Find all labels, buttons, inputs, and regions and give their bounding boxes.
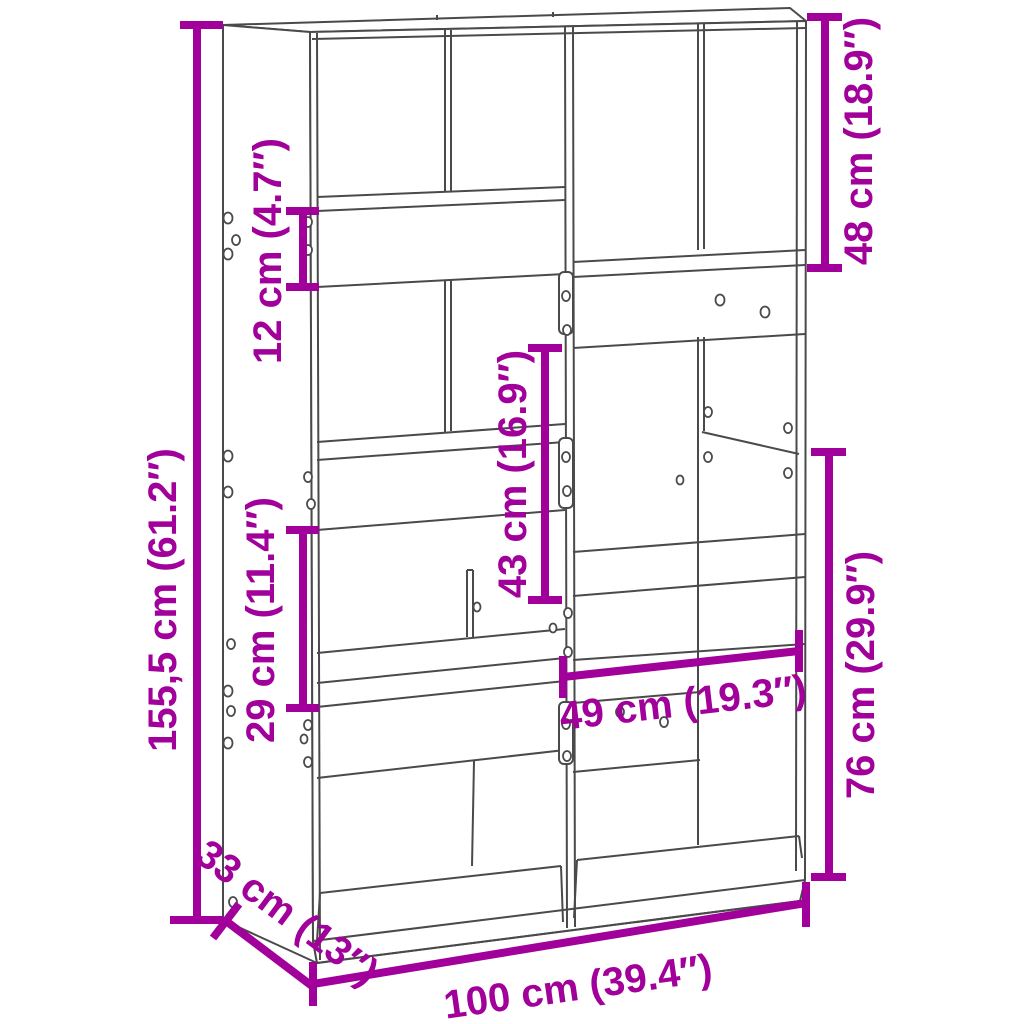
- dim-shelf-band-height-label: 12 cm (4.7″): [246, 138, 290, 364]
- right-inner-edge: [796, 22, 797, 871]
- dim-top-right-compartment-label: 48 cm (18.9″): [837, 17, 881, 265]
- bookcase-dimension-diagram: 155,5 cm (61.2″) 12 cm (4.7″) 29 cm (11.…: [0, 0, 1024, 1024]
- dim-center-compartment-label: 43 cm (16.9″): [491, 350, 535, 598]
- dimension-diagram-page: 155,5 cm (61.2″) 12 cm (4.7″) 29 cm (11.…: [0, 0, 1024, 1024]
- dim-left-compartment-label: 29 cm (11.4″): [239, 497, 283, 743]
- dim-right-lower-section-label: 76 cm (29.9″): [839, 551, 883, 799]
- connector-plate: [559, 438, 573, 508]
- dim-total-height-label: 155,5 cm (61.2″): [141, 448, 185, 752]
